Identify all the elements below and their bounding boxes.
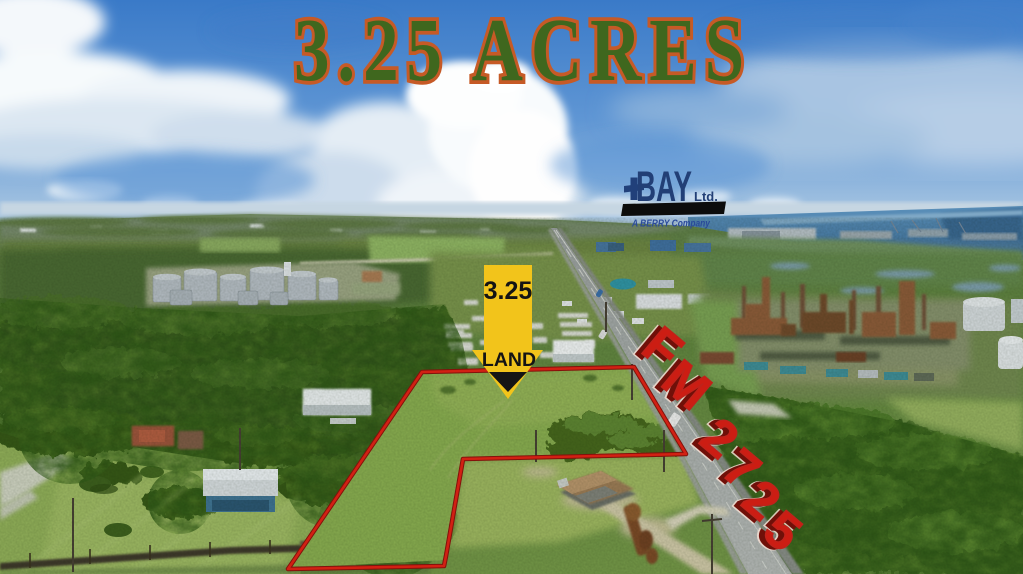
svg-text:A BERRY Company: A BERRY Company xyxy=(631,219,710,230)
svg-text:Ltd.: Ltd. xyxy=(694,189,718,204)
svg-text:LAND: LAND xyxy=(482,349,536,371)
svg-text:3.25: 3.25 xyxy=(484,277,533,305)
svg-text:3.25 ACRES: 3.25 ACRES xyxy=(294,1,752,100)
